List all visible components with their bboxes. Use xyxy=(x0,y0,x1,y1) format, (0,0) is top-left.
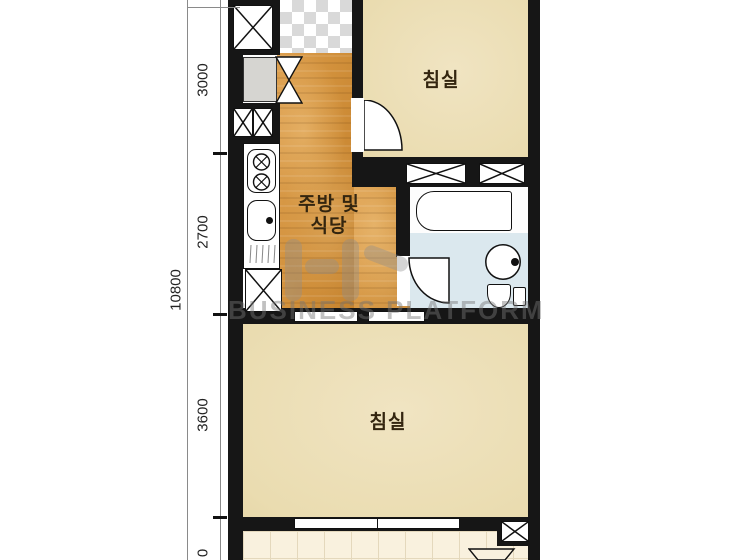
kitchen-x-box-icon xyxy=(245,269,282,312)
window xyxy=(294,518,460,529)
dimension-extension-line xyxy=(187,7,240,8)
drainboard-lines-icon xyxy=(248,245,276,263)
shaft-x-icon xyxy=(233,5,273,50)
wall-right-outer xyxy=(528,0,540,560)
shoe-cabinet xyxy=(243,57,277,102)
window-divider xyxy=(377,519,378,528)
window xyxy=(294,311,358,322)
bedroom-top-label: 침실 xyxy=(405,70,477,92)
toilet-tank-icon xyxy=(513,287,526,306)
kitchen-label: 주방 및 식당 xyxy=(293,194,365,238)
stove-burner-icon xyxy=(251,152,272,172)
entrance-checker-floor xyxy=(280,0,352,53)
dimension-line-inner xyxy=(220,0,221,560)
faucet-dot-icon xyxy=(266,217,273,224)
shaft-x-icon xyxy=(253,108,273,137)
wall-bathroom-left xyxy=(396,187,410,257)
shaft-x-icon xyxy=(233,108,253,137)
kitchen-label-line2: 식당 xyxy=(293,216,365,238)
washbasin-icon xyxy=(484,243,522,281)
bedroom-top-door-opening xyxy=(351,98,364,152)
bedroom-bottom-label: 침실 xyxy=(352,412,424,434)
door-swing-icon xyxy=(408,257,450,304)
vent-trapezoid-icon xyxy=(468,548,516,560)
kitchen-label-line1: 주방 및 xyxy=(293,194,365,216)
window xyxy=(368,311,425,322)
wall-left-outer xyxy=(228,0,243,560)
door-swing-icon xyxy=(364,100,403,151)
stove-burner-icon xyxy=(251,172,272,192)
balcony-shaft-x-icon xyxy=(501,521,529,542)
floor-plan-canvas: 침실 주방 및 식당 침실 3000 2700 3600 0 10800 BUS… xyxy=(0,0,750,560)
dimension-label-bottom-partial: 0 xyxy=(195,549,212,557)
dimension-line-outer xyxy=(187,0,188,560)
dimension-label-3000: 3000 xyxy=(195,63,212,96)
dimension-label-3600: 3600 xyxy=(195,398,212,431)
closet-x-icon xyxy=(406,163,466,184)
bathtub-icon xyxy=(416,191,512,231)
dimension-tick xyxy=(213,313,227,316)
dimension-label-2700: 2700 xyxy=(195,215,212,248)
dimension-tick xyxy=(213,152,227,155)
closet-x-icon xyxy=(479,163,525,184)
entrance-door-mark-icon xyxy=(275,56,303,104)
dimension-tick xyxy=(213,516,227,519)
dimension-label-total-10800: 10800 xyxy=(168,269,185,311)
